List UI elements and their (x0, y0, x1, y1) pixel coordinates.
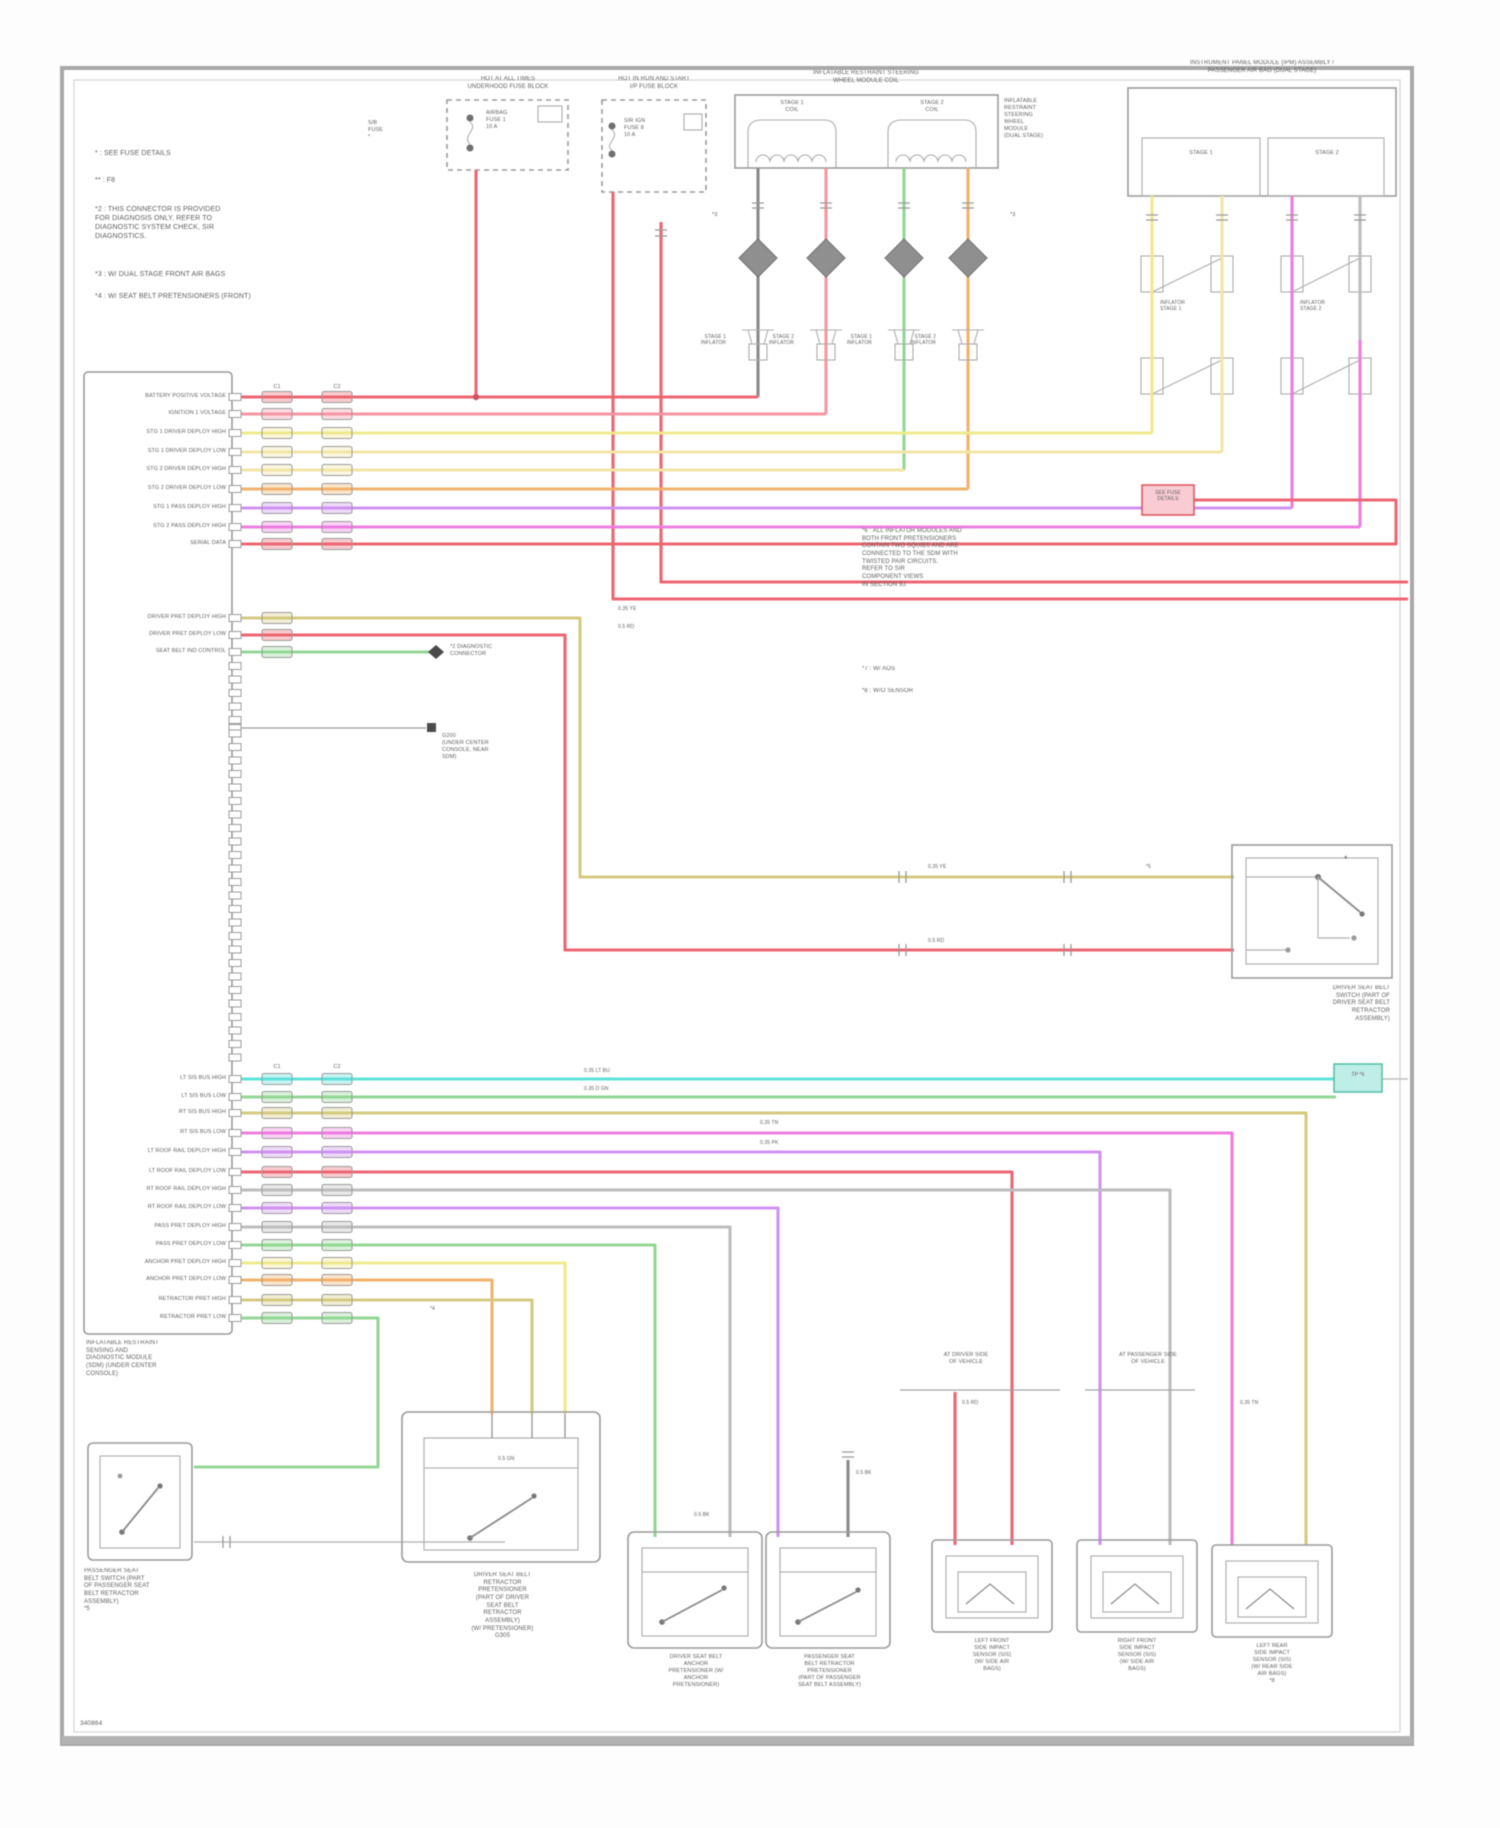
connector-box (322, 503, 352, 514)
label-twisted_pair_box: TP *6 (1334, 1072, 1382, 1078)
connector-box (262, 522, 292, 533)
connector-box (262, 1258, 292, 1269)
label-sdm-conn4: C2 (322, 1064, 352, 1071)
connector-box (229, 1149, 241, 1156)
connector-box (229, 1205, 241, 1212)
connector-box (229, 811, 241, 818)
connector-box (322, 539, 352, 550)
connector-box (262, 1275, 292, 1286)
label-sdm-pins_top-2: STG 1 DRIVER DEPLOY HIGH (60, 429, 226, 436)
connector-box (229, 615, 241, 622)
connector-box (262, 1167, 292, 1178)
connector-box (229, 486, 241, 493)
connector-box (229, 838, 241, 845)
label-wire_tags-t9: 0.35 PK (760, 1140, 804, 1146)
label-wire_tags-t11: 0.5 GN (498, 1456, 544, 1462)
label-coil-header: INFLATABLE RESTRAINT STEERING WHEEL MODU… (733, 70, 999, 85)
connector-box (262, 447, 292, 458)
label-sdm-conn1: C1 (262, 384, 292, 391)
label-wire_tags-t7: 0.35 D GN (584, 1086, 634, 1092)
label-belt_switch-asterisk: * (1344, 854, 1360, 866)
connector-box (262, 1074, 292, 1085)
label-wire_tags-t15: 0.35 TN (1240, 1400, 1284, 1406)
connector-box (322, 1108, 352, 1119)
connector-box (229, 1110, 241, 1117)
label-pab-header: INSTRUMENT PANEL MODULE (IPM) ASSEMBLY /… (1126, 60, 1398, 75)
connector-box (229, 906, 241, 913)
connector-box (262, 503, 292, 514)
connector-box (262, 1108, 292, 1119)
connector-box (229, 771, 241, 778)
label-sdm-pins_top-6: STG 1 PASS DEPLOY HIGH (60, 504, 226, 511)
label-coil-stage2: STAGE 2 COIL (897, 100, 967, 114)
connector-box (322, 522, 352, 533)
connector-box (229, 1224, 241, 1231)
label-wire_tags-t4: 0.5 RD (928, 938, 976, 944)
label-notes-n5: *4 : W/ SEAT BELT PRETENSIONERS (FRONT) (95, 293, 425, 302)
label-wire_tags-t13: 0.5 BK (856, 1470, 900, 1476)
label-right_notes-s2: *8 : W/O SENSOR (862, 688, 982, 696)
connector-box (322, 1167, 352, 1178)
label-wire_tags-t16: *3 (712, 212, 742, 219)
label-wire_tags-t10: *4 (430, 1306, 466, 1312)
connector-box (229, 892, 241, 899)
connector-box (322, 1074, 352, 1085)
label-sdm-conn2: C2 (322, 384, 352, 391)
label-sdm-pins_bot-7: RT ROOF RAIL DEPLOY LOW (60, 1204, 226, 1211)
label-squibs-s1: STAGE 1 INFLATOR (672, 334, 726, 347)
label-wire_tags-t5: *5 (1146, 864, 1186, 870)
label-sdm-pins_bot-10: ANCHOR PRET DEPLOY HIGH (60, 1259, 226, 1266)
label-sdm-pins_mid-0: DRIVER PRET DEPLOY HIGH (60, 614, 226, 621)
connector-box (262, 1222, 292, 1233)
label-belt_switch-caption: DRIVER SEAT BELT SWITCH (PART OF DRIVER … (1160, 985, 1390, 1023)
label-sdm-pins_bot-8: PASS PRET DEPLOY HIGH (60, 1223, 226, 1230)
connector-box (229, 1130, 241, 1137)
label-pab-inf1: INFLATOR STAGE 1 (1160, 300, 1218, 313)
connector-box (229, 757, 241, 764)
label-fuse1-side: S/B FUSE * (368, 120, 434, 141)
connector-box (229, 632, 241, 639)
label-pab-stage2: STAGE 2 (1272, 150, 1382, 157)
connector-box (229, 865, 241, 872)
connector-box (229, 973, 241, 980)
connector-box (262, 409, 292, 420)
connector-box (229, 703, 241, 710)
label-sdm-pins_top-5: STG 2 DRIVER DEPLOY LOW (60, 485, 226, 492)
connector-box (262, 484, 292, 495)
label-coil-side: INFLATABLE RESTRAINT STEERING WHEEL MODU… (1004, 98, 1078, 140)
connector-box (229, 879, 241, 886)
label-wire_tags-t17: *3 (1010, 212, 1046, 219)
label-comp_b-caption: PASSENGER SEAT BELT RETRACTOR PRETENSION… (752, 1654, 907, 1689)
connector-box (229, 744, 241, 751)
label-pab-inf2: INFLATOR STAGE 2 (1300, 300, 1358, 313)
page-border (62, 68, 1412, 1744)
label-wire_tags-t3: 0.35 YE (928, 864, 976, 870)
label-fuse1-fuse: AIRBAG FUSE 1 10 A (486, 110, 556, 131)
connector-box (229, 1277, 241, 1284)
label-squibs-s4: STAGE 2 INFLATOR (882, 334, 936, 347)
connector-box (322, 1295, 352, 1306)
connector-box (262, 1295, 292, 1306)
label-right_notes-p: *6 : ALL INFLATOR MODULES AND BOTH FRONT… (862, 528, 1062, 589)
connector-box (229, 933, 241, 940)
label-wire_tags-t2: 0.5 RD (618, 624, 662, 630)
label-sdm-pins_top-4: STG 2 DRIVER DEPLOY HIGH (60, 466, 226, 473)
connector-box (322, 392, 352, 403)
label-notes-n1: * : SEE FUSE DETAILS (95, 150, 345, 159)
ground-dot (427, 723, 436, 732)
connector-box (229, 717, 241, 724)
connector-box (322, 1222, 352, 1233)
connector-box (322, 465, 352, 476)
label-sdm-pins_top-1: IGNITION 1 VOLTAGE (60, 410, 226, 417)
connector-box (322, 1128, 352, 1139)
label-sdm-pins_top-7: STG 2 PASS DEPLOY HIGH (60, 523, 226, 530)
label-sdm-pins_mid-1: DRIVER PRET DEPLOY LOW (60, 631, 226, 638)
label-sdm-pins_top-3: STG 1 DRIVER DEPLOY LOW (60, 448, 226, 455)
connector-box (229, 541, 241, 548)
label-coil-stage1: STAGE 1 COIL (757, 100, 827, 114)
connector-box (229, 1297, 241, 1304)
label-sdm-pins_bot-0: LT SIS BUS HIGH (60, 1075, 226, 1082)
label-headers_right-h1: AT DRIVER SIDE OF VEHICLE (908, 1352, 1024, 1366)
connector-box (229, 784, 241, 791)
label-fuse2-header: HOT IN RUN AND START I/P FUSE BLOCK (592, 76, 716, 91)
connector-box (262, 1185, 292, 1196)
connector-box (229, 649, 241, 656)
label-fuse1-header: HOT AT ALL TIMES UNDERHOOD FUSE BLOCK (440, 76, 576, 91)
connector-box (229, 663, 241, 670)
label-wire_tags-t14: 0.5 RD (962, 1400, 1006, 1406)
label-sdm-pins_bot-4: LT ROOF RAIL DEPLOY HIGH (60, 1148, 226, 1155)
label-sdm-pins_bot-3: RT SIS BUS LOW (60, 1129, 226, 1136)
connector-box (262, 392, 292, 403)
label-wire_tags-t8: 0.35 TN (760, 1120, 804, 1126)
connector-box (262, 465, 292, 476)
label-sdm-pins_bot-6: RT ROOF RAIL DEPLOY HIGH (60, 1186, 226, 1193)
label-headers_right-h2: AT PASSENGER SIDE OF VEHICLE (1088, 1352, 1208, 1366)
connector-box (229, 1187, 241, 1194)
label-sdm-pins_mid-2: SEAT BELT IND CONTROL (60, 648, 226, 655)
connector-box (262, 428, 292, 439)
connector-box (262, 1147, 292, 1158)
connector-box (229, 1076, 241, 1083)
connector-box (229, 1027, 241, 1034)
connector-box (322, 1185, 352, 1196)
connector-box (229, 690, 241, 697)
connector-box (229, 449, 241, 456)
connector-box (229, 1054, 241, 1061)
connector-box (229, 411, 241, 418)
label-right_notes-s1: *7 : W/ AOS (862, 666, 982, 674)
connector-box (322, 1275, 352, 1286)
label-footer-doc_id: 340864 (80, 1720, 190, 1728)
label-sdm-marker_label: *2 DIAGNOSTIC CONNECTOR (450, 644, 580, 658)
connector-box (262, 1203, 292, 1214)
label-wire_tags-t6: 0.35 LT BU (584, 1068, 634, 1074)
connector-box (229, 946, 241, 953)
connector-box (229, 730, 241, 737)
label-pab-stage1: STAGE 1 (1146, 150, 1256, 157)
connector-box (262, 539, 292, 550)
label-squibs-s2: STAGE 2 INFLATOR (740, 334, 794, 347)
label-notes-n3: *2 : THIS CONNECTOR IS PROVIDED FOR DIAG… (95, 206, 375, 242)
connector-box (322, 1258, 352, 1269)
connector-box (262, 1092, 292, 1103)
connector-box (322, 1203, 352, 1214)
connector-box (229, 1315, 241, 1322)
label-comp_c3-caption: LEFT REAR SIDE IMPACT SENSOR (SIS) (W/ R… (1202, 1643, 1342, 1685)
connector-box (322, 428, 352, 439)
label-sdm-pins_bot-5: LT ROOF RAIL DEPLOY LOW (60, 1168, 226, 1175)
label-notes-n4: *3 : W/ DUAL STAGE FRONT AIR BAGS (95, 271, 405, 280)
label-sdm-ground_label: G200 (UNDER CENTER CONSOLE, NEAR SDM) (442, 733, 562, 761)
label-see_fuse_box: SEE FUSE DETAILS (1143, 490, 1193, 503)
connector-box (229, 852, 241, 859)
label-sdm-pins_bot-2: RT SIS BUS HIGH (60, 1109, 226, 1116)
label-sdm-pins_bot-1: LT SIS BUS LOW (60, 1093, 226, 1100)
wiring-diagram-page: * : SEE FUSE DETAILS** : F8*2 : THIS CON… (0, 0, 1500, 1828)
connector-box (262, 1313, 292, 1324)
connector-box (229, 960, 241, 967)
label-sdm-pins_bot-13: RETRACTOR PRET LOW (60, 1314, 226, 1321)
connector-box (229, 798, 241, 805)
connector-box (229, 394, 241, 401)
connector-box (322, 409, 352, 420)
connector-box (262, 647, 292, 658)
label-comp_c1-caption: LEFT FRONT SIDE IMPACT SENSOR (SIS) (W/ … (922, 1638, 1062, 1673)
label-squibs-s3: STAGE 1 INFLATOR (818, 334, 872, 347)
connector-box (322, 1147, 352, 1158)
label-retractor-caption: DRIVER SEAT BELT RETRACTOR PRETENSIONER … (415, 1572, 590, 1641)
connector-box (229, 676, 241, 683)
connector-box (322, 484, 352, 495)
connector-box (229, 919, 241, 926)
label-sdm-pins_top-0: BATTERY POSITIVE VOLTAGE (60, 393, 226, 400)
connector-box (229, 825, 241, 832)
connector-box (229, 524, 241, 531)
connector-box (262, 613, 292, 624)
label-sdm-pins_bot-9: PASS PRET DEPLOY LOW (60, 1241, 226, 1248)
connector-box (262, 630, 292, 641)
label-sdm-pins_top-8: SERIAL DATA (60, 540, 226, 547)
connector-box (229, 467, 241, 474)
connector-box (322, 1313, 352, 1324)
label-sdm-pins_bot-11: ANCHOR PRET DEPLOY LOW (60, 1276, 226, 1283)
connector-box (229, 430, 241, 437)
connector-box (322, 1092, 352, 1103)
label-comp_c2-caption: RIGHT FRONT SIDE IMPACT SENSOR (SIS) (W/… (1067, 1638, 1207, 1673)
connector-box (229, 987, 241, 994)
connector-box (229, 1260, 241, 1267)
label-notes-n2: ** : F8 (95, 177, 215, 186)
connector-box (229, 505, 241, 512)
connector-box (229, 1169, 241, 1176)
connector-box (262, 1128, 292, 1139)
label-wire_tags-t12: 0.5 BK (694, 1512, 738, 1518)
connector-box (229, 1014, 241, 1021)
label-fuse2-fuse: SIR IGN FUSE 8 10 A (624, 118, 694, 139)
label-wire_tags-t1: 0.35 YE (618, 606, 662, 612)
label-left_switch-caption: PASSENGER SEAT BELT SWITCH (PART OF PASS… (84, 1568, 234, 1614)
connector-box (229, 1000, 241, 1007)
label-sdm-caption: INFLATABLE RESTRAINT SENSING AND DIAGNOS… (86, 1340, 296, 1378)
connector-box (229, 1041, 241, 1048)
connector-box (262, 1240, 292, 1251)
label-sdm-pins_bot-12: RETRACTOR PRET HIGH (60, 1296, 226, 1303)
connector-box (229, 1094, 241, 1101)
label-sdm-conn3: C1 (262, 1064, 292, 1071)
connector-box (322, 447, 352, 458)
connector-box (229, 1242, 241, 1249)
connector-box (322, 1240, 352, 1251)
